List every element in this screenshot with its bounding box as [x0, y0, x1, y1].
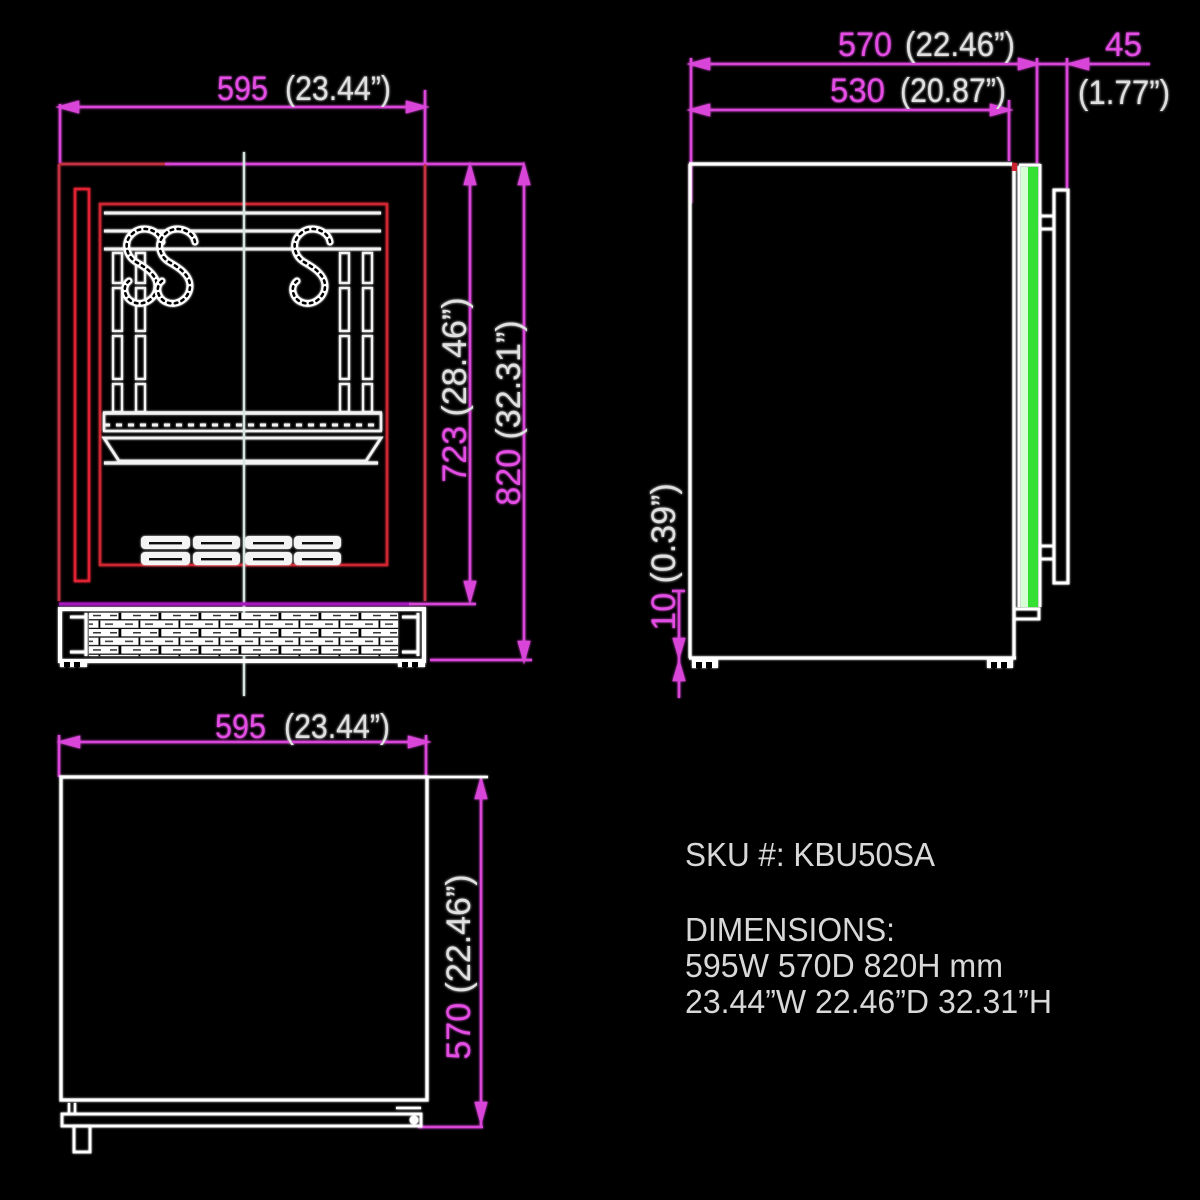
svg-text:570 (22.46”): 570 (22.46”)	[440, 874, 478, 1059]
svg-text:595W 570D 820H mm: 595W 570D 820H mm	[685, 947, 1003, 984]
svg-text:(22.46”): (22.46”)	[905, 26, 1015, 64]
svg-text:820 (32.31”): 820 (32.31”)	[490, 320, 528, 505]
svg-text:570: 570	[838, 26, 892, 64]
svg-text:723 (28.46”): 723 (28.46”)	[436, 297, 474, 482]
svg-text:(23.44”): (23.44”)	[284, 708, 390, 746]
svg-text:(23.44”): (23.44”)	[285, 70, 391, 108]
svg-text:10 (0.39”): 10 (0.39”)	[645, 483, 683, 630]
svg-text:SKU #: KBU50SA: SKU #: KBU50SA	[685, 836, 935, 873]
svg-text:595: 595	[217, 70, 268, 108]
svg-text:(1.77”): (1.77”)	[1078, 74, 1170, 112]
svg-text:595: 595	[215, 708, 266, 746]
svg-text:(20.87”): (20.87”)	[900, 72, 1006, 110]
svg-text:530: 530	[830, 72, 885, 110]
svg-text:45: 45	[1105, 26, 1142, 64]
svg-text:23.44”W 22.46”D 32.31”H: 23.44”W 22.46”D 32.31”H	[685, 983, 1052, 1020]
svg-text:DIMENSIONS:: DIMENSIONS:	[685, 911, 895, 948]
